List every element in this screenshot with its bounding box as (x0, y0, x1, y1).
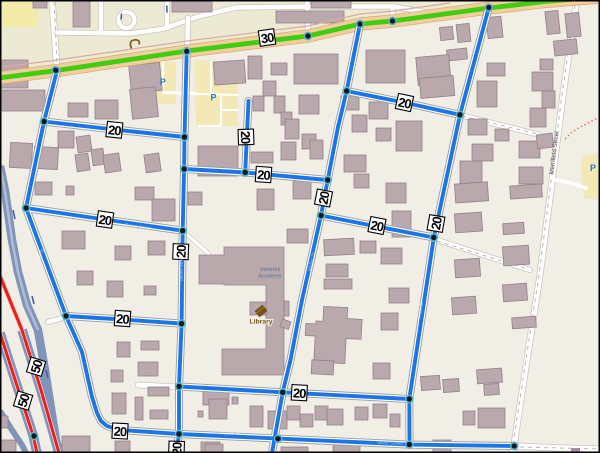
svg-text:20: 20 (116, 311, 130, 327)
svg-text:20: 20 (107, 122, 122, 138)
svg-text:Academy: Academy (258, 274, 282, 280)
svg-text:P: P (160, 77, 166, 87)
svg-text:20: 20 (169, 442, 184, 453)
svg-text:20: 20 (293, 385, 307, 401)
svg-text:Sever Street: Sever Street (179, 254, 185, 281)
svg-text:Ingalls St: Ingalls St (220, 430, 241, 437)
svg-text:20: 20 (238, 131, 253, 145)
svg-text:P: P (210, 93, 216, 103)
svg-text:Silver Street: Silver Street (377, 440, 404, 447)
svg-text:Venerini: Venerini (260, 267, 280, 273)
svg-text:P: P (590, 163, 596, 173)
svg-text:Library: Library (249, 319, 272, 326)
svg-text:20: 20 (257, 167, 271, 183)
svg-text:20: 20 (113, 424, 127, 440)
